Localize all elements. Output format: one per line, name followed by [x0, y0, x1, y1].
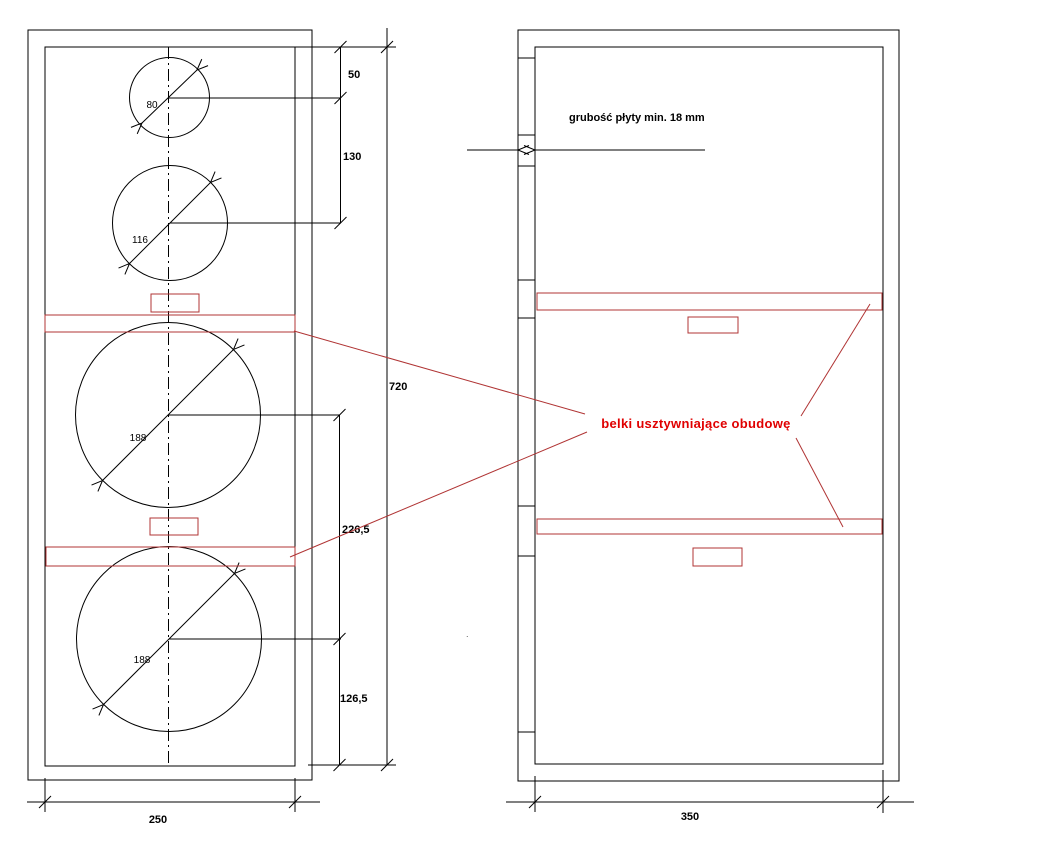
plate-thickness-note: grubość płyty min. 18 mm	[569, 112, 705, 124]
front-brace-beam-lower	[46, 547, 295, 566]
tweeter-diameter-label: 80	[146, 100, 158, 111]
front-brace-block-upper	[151, 294, 199, 312]
side-brace-beam-lower	[537, 519, 882, 534]
dim-label-bottom-offset: 126,5	[340, 693, 368, 705]
dim-label-top-offset: 50	[348, 69, 360, 81]
dim-label-height: 720	[389, 381, 407, 393]
woofer1-diameter-label: 188	[130, 433, 147, 444]
dim-label-side-width: 350	[681, 811, 699, 823]
tweeter-diameter-line	[142, 70, 197, 123]
woofer2-diameter-label: 188	[134, 655, 151, 666]
cabinet-drawing: 80 116 188 188 50 130 720 226,5 126,5 25…	[0, 0, 1049, 849]
front-panel-outer-outline	[28, 30, 312, 780]
side-brace-block-lower	[693, 548, 742, 566]
stray-dot: .	[466, 629, 469, 639]
front-brace-block-lower	[150, 518, 198, 535]
dim-label-tweeter-to-midrange: 130	[343, 151, 361, 163]
braces-annotation: belki usztywniające obudowę	[601, 416, 790, 431]
front-panel-inner-outline	[45, 47, 295, 766]
front-brace-beam-upper	[45, 315, 295, 332]
dim-label-front-width: 250	[149, 814, 167, 826]
side-panel-outer-outline	[518, 30, 899, 781]
wall-joint-ticks	[518, 58, 535, 732]
midrange-diameter-label: 116	[132, 235, 148, 246]
side-brace-beam-upper	[537, 293, 882, 310]
side-brace-block-upper	[688, 317, 738, 333]
side-panel-inner-outline	[535, 47, 883, 764]
drawing-canvas: 80 116 188 188 50 130 720 226,5 126,5 25…	[0, 0, 1049, 849]
